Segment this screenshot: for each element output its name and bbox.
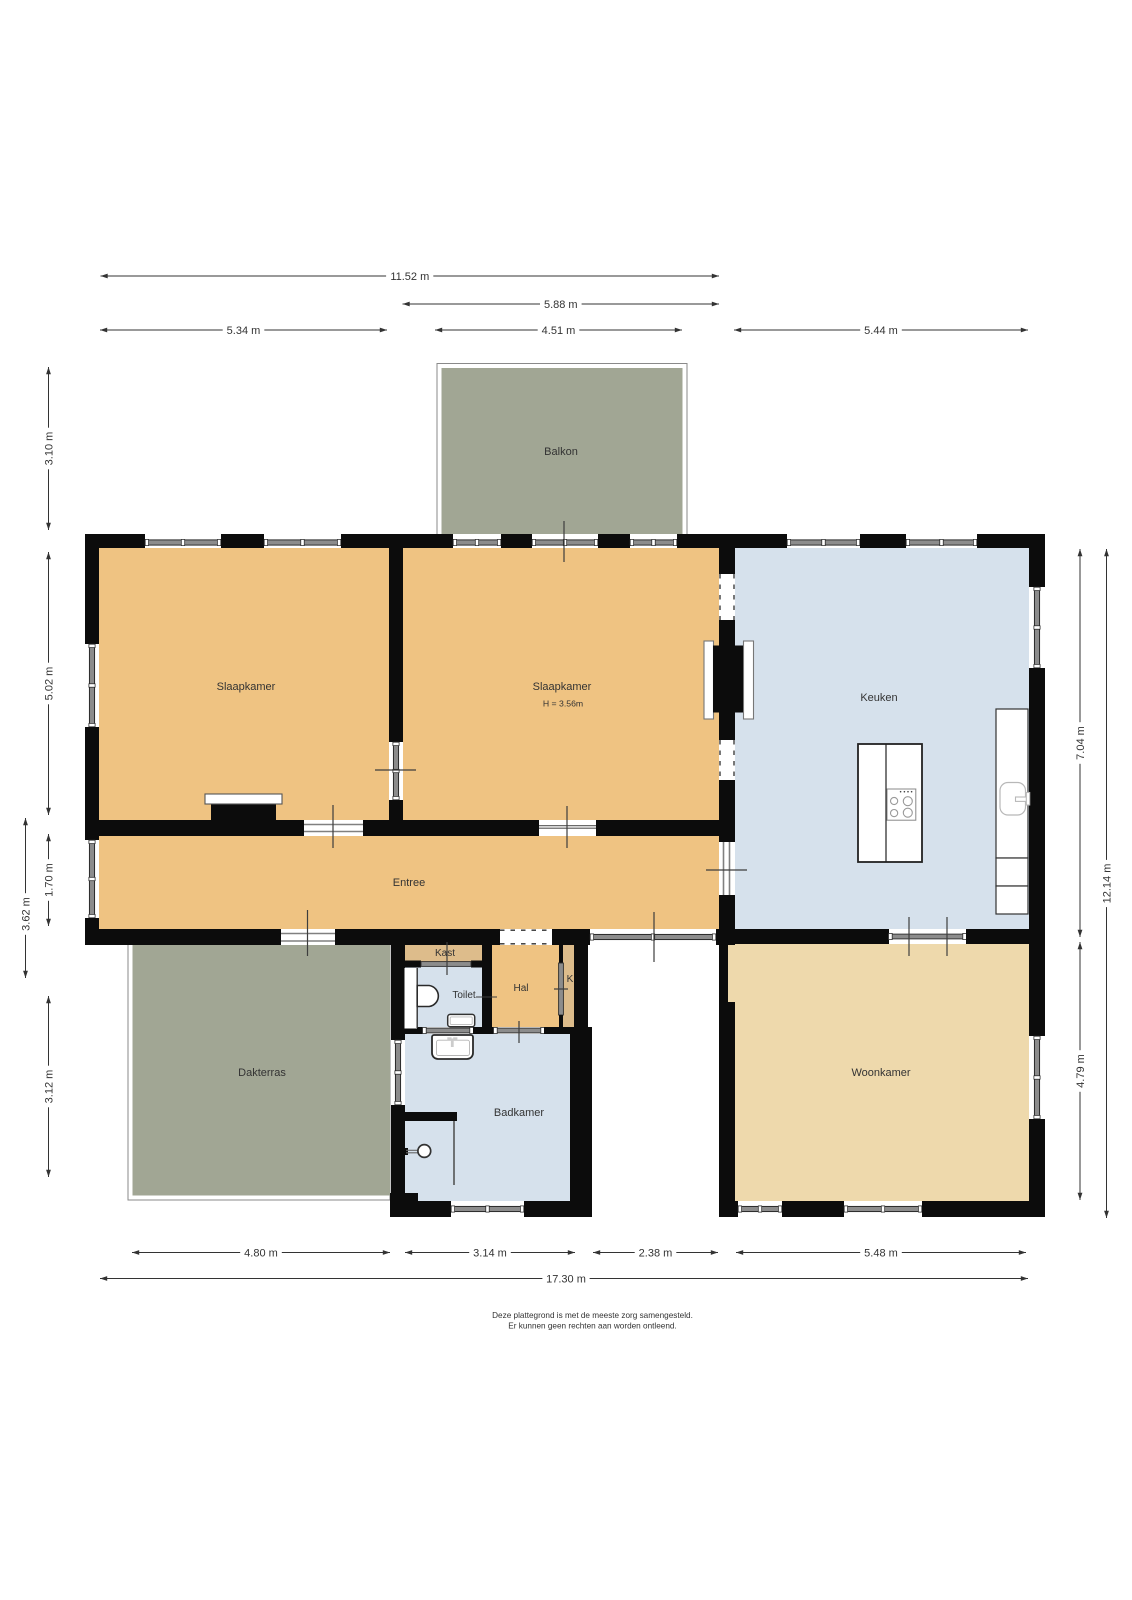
svg-text:5.02 m: 5.02 m	[43, 667, 55, 701]
svg-text:Woonkamer: Woonkamer	[851, 1067, 910, 1079]
svg-text:Keuken: Keuken	[860, 692, 897, 704]
svg-text:7.04 m: 7.04 m	[1075, 726, 1087, 760]
svg-text:11.52 m: 11.52 m	[390, 271, 429, 283]
svg-text:Entree: Entree	[393, 877, 425, 889]
svg-text:Hal: Hal	[513, 983, 528, 994]
svg-text:12.14 m: 12.14 m	[1101, 864, 1113, 904]
svg-text:Er kunnen geen rechten aan wor: Er kunnen geen rechten aan worden ontlee…	[508, 1322, 676, 1331]
svg-text:Toilet: Toilet	[452, 990, 476, 1001]
svg-text:Slaapkamer: Slaapkamer	[217, 681, 276, 693]
svg-text:5.34 m: 5.34 m	[227, 325, 261, 337]
svg-text:K: K	[567, 974, 574, 985]
svg-text:4.79 m: 4.79 m	[1075, 1054, 1087, 1088]
svg-text:4.80 m: 4.80 m	[244, 1247, 278, 1259]
svg-text:Slaapkamer: Slaapkamer	[533, 681, 592, 693]
svg-text:5.48 m: 5.48 m	[864, 1247, 898, 1259]
svg-text:3.10 m: 3.10 m	[43, 432, 55, 466]
svg-text:3.14 m: 3.14 m	[473, 1247, 507, 1259]
svg-text:H = 3.56m: H = 3.56m	[543, 699, 583, 709]
svg-text:17.30 m: 17.30 m	[546, 1273, 586, 1285]
svg-text:5.88 m: 5.88 m	[544, 299, 578, 311]
svg-text:Balkon: Balkon	[544, 446, 578, 458]
svg-text:3.12 m: 3.12 m	[43, 1070, 55, 1104]
svg-text:4.51 m: 4.51 m	[542, 325, 576, 337]
svg-text:2.38 m: 2.38 m	[639, 1247, 673, 1259]
svg-text:3.62 m: 3.62 m	[20, 897, 32, 931]
svg-text:Deze plattegrond is met de mee: Deze plattegrond is met de meeste zorg s…	[492, 1311, 693, 1320]
svg-text:1.70 m: 1.70 m	[43, 863, 55, 897]
svg-text:Badkamer: Badkamer	[494, 1107, 544, 1119]
svg-text:Dakterras: Dakterras	[238, 1067, 286, 1079]
svg-text:5.44 m: 5.44 m	[864, 325, 898, 337]
svg-text:Kast: Kast	[435, 948, 455, 959]
